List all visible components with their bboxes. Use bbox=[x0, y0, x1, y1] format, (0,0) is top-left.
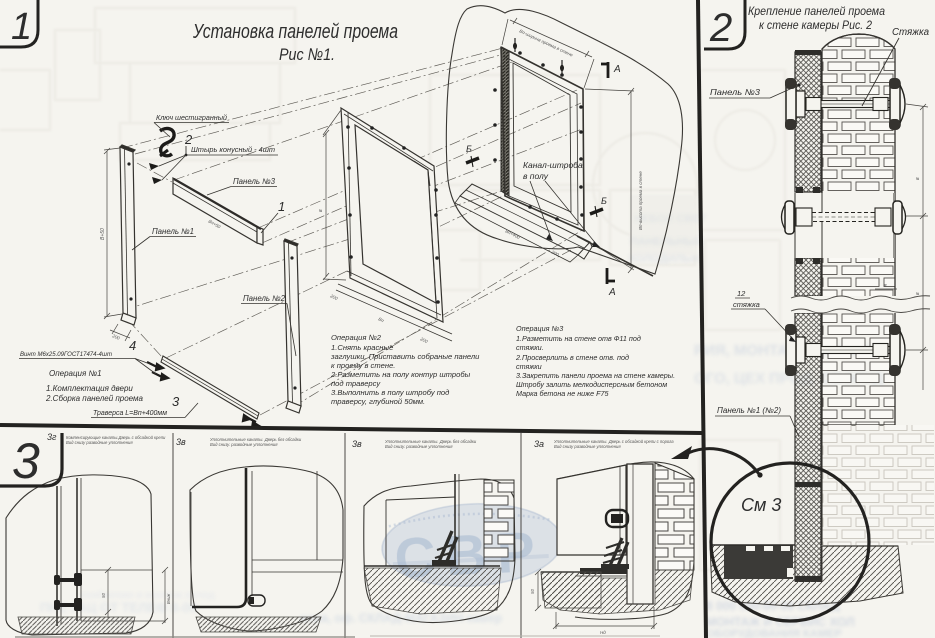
svg-text:заглушки. Приставить собраные: заглушки. Приставить собраные панели bbox=[330, 352, 480, 361]
svg-text:траверсу, глубиной 50мм.: траверсу, глубиной 50мм. bbox=[331, 397, 425, 406]
svg-text:Нд: Нд bbox=[600, 630, 606, 635]
svg-text:Операция №2: Операция №2 bbox=[331, 333, 382, 342]
svg-text:стяжки.: стяжки. bbox=[516, 343, 544, 352]
svg-text:1.Комплектация двери: 1.Комплектация двери bbox=[46, 384, 133, 393]
svg-text:Панель №1 (№2): Панель №1 (№2) bbox=[717, 406, 781, 415]
svg-text:Ключ шестигранный: Ключ шестигранный bbox=[156, 113, 228, 122]
svg-text:Б: Б bbox=[601, 196, 607, 206]
svg-text:12: 12 bbox=[737, 289, 746, 298]
svg-text:3: 3 bbox=[172, 394, 180, 409]
svg-text:в: в bbox=[915, 177, 921, 180]
svg-text:2.Сборка панелей проема: 2.Сборка панелей проема bbox=[45, 394, 144, 403]
svg-text:Панель №3: Панель №3 bbox=[710, 87, 760, 97]
svg-text:3г: 3г bbox=[47, 432, 57, 442]
svg-text:к стене камеры Рис. 2: к стене камеры Рис. 2 bbox=[759, 20, 873, 32]
svg-text:50: 50 bbox=[101, 592, 106, 598]
svg-text:стяжка: стяжка bbox=[733, 300, 760, 309]
svg-text:Марка бетона не ниже F75: Марка бетона не ниже F75 bbox=[516, 389, 609, 398]
svg-text:Панель №3: Панель №3 bbox=[233, 177, 276, 186]
svg-text:Стяжка: Стяжка bbox=[892, 27, 929, 38]
svg-text:Вид снизу. разводные уплотнени: Вид снизу. разводные уплотнения bbox=[210, 442, 278, 447]
svg-text:Установка панелей проема: Установка панелей проема bbox=[192, 21, 398, 43]
svg-text:Операция №3: Операция №3 bbox=[516, 324, 563, 333]
svg-text:Крепление панелей проема: Крепление панелей проема bbox=[748, 6, 885, 18]
svg-text:1: 1 bbox=[11, 6, 32, 48]
svg-text:Штырь конусный - 4шт: Штырь конусный - 4шт bbox=[191, 145, 275, 154]
svg-text:3а: 3а bbox=[534, 439, 544, 449]
svg-text:Операция №1: Операция №1 bbox=[49, 369, 102, 378]
svg-text:Траверса L=Вп+400мм: Траверса L=Вп+400мм bbox=[93, 408, 167, 417]
svg-text:2: 2 bbox=[709, 6, 732, 50]
svg-text:под траверсу: под траверсу bbox=[331, 379, 381, 388]
svg-text:в полу: в полу bbox=[523, 171, 549, 181]
svg-text:3.Выполнить в полу штробу под: 3.Выполнить в полу штробу под bbox=[331, 388, 449, 397]
svg-text:в: в bbox=[915, 292, 921, 295]
svg-text:3в: 3в bbox=[176, 437, 186, 447]
svg-text:Вниж: Вниж bbox=[166, 593, 171, 604]
svg-text:Винт М6х25.09ГОСТ17474-4шт: Винт М6х25.09ГОСТ17474-4шт bbox=[20, 351, 112, 358]
svg-text:В+50: В+50 bbox=[100, 228, 106, 240]
svg-text:Канал-штроба: Канал-штроба bbox=[523, 160, 583, 170]
svg-text:См 3: См 3 bbox=[741, 495, 781, 515]
svg-text:Рис №1.: Рис №1. bbox=[279, 45, 335, 64]
svg-text:1.Разметить на стене отв Ф11 п: 1.Разметить на стене отв Ф11 под bbox=[516, 334, 641, 343]
svg-text:2.Разметить на полу контур штр: 2.Разметить на полу контур штробы bbox=[330, 370, 471, 379]
svg-text:в: в bbox=[318, 209, 324, 212]
svg-text:А: А bbox=[608, 287, 616, 298]
svg-text:3в: 3в bbox=[352, 439, 362, 449]
svg-text:А: А bbox=[613, 64, 621, 75]
svg-text:Штробу залить мелкодисперсным: Штробу залить мелкодисперсным бетоном bbox=[516, 380, 667, 389]
svg-text:50: 50 bbox=[530, 588, 535, 594]
svg-text:Вид снизу разводные уплотнения: Вид снизу разводные уплотнения bbox=[66, 440, 133, 445]
svg-text:Панель №2: Панель №2 bbox=[243, 294, 286, 303]
svg-text:ХОЛОДИЛЬН: ХОЛОДИЛЬН bbox=[628, 253, 699, 265]
svg-text:1: 1 bbox=[278, 199, 285, 214]
svg-text:Вид снизу разводные уплотнения: Вид снизу разводные уплотнения bbox=[554, 444, 621, 449]
svg-text:к проему в стене.: к проему в стене. bbox=[331, 361, 395, 370]
svg-text:2.Просверлить в стене отв. п: 2.Просверлить в стене отв. под bbox=[515, 353, 629, 362]
svg-text:Вп-высота проема в стене: Вп-высота проема в стене bbox=[638, 171, 643, 230]
svg-text:3: 3 bbox=[12, 433, 40, 489]
svg-text:3.Закрепить панели проема на с: 3.Закрепить панели проема на стене камер… bbox=[516, 371, 675, 380]
svg-text:Б: Б bbox=[466, 144, 472, 154]
svg-text:4: 4 bbox=[129, 338, 136, 353]
svg-text:Панель №1: Панель №1 bbox=[152, 227, 194, 236]
svg-text:1.Снять красные: 1.Снять красные bbox=[331, 343, 393, 352]
svg-text:в: в bbox=[884, 283, 887, 289]
svg-text:ПАНЕЛЬНЫЙ: ПАНЕЛЬНЫЙ bbox=[630, 235, 703, 248]
svg-text:ОБОРУДОВАНИЯ КАМЕР: ОБОРУДОВАНИЯ КАМЕР bbox=[706, 628, 842, 638]
svg-text:стяжки: стяжки bbox=[516, 362, 542, 371]
svg-text:Вид снизу. разводные уплотнени: Вид снизу. разводные уплотнения bbox=[385, 444, 453, 449]
